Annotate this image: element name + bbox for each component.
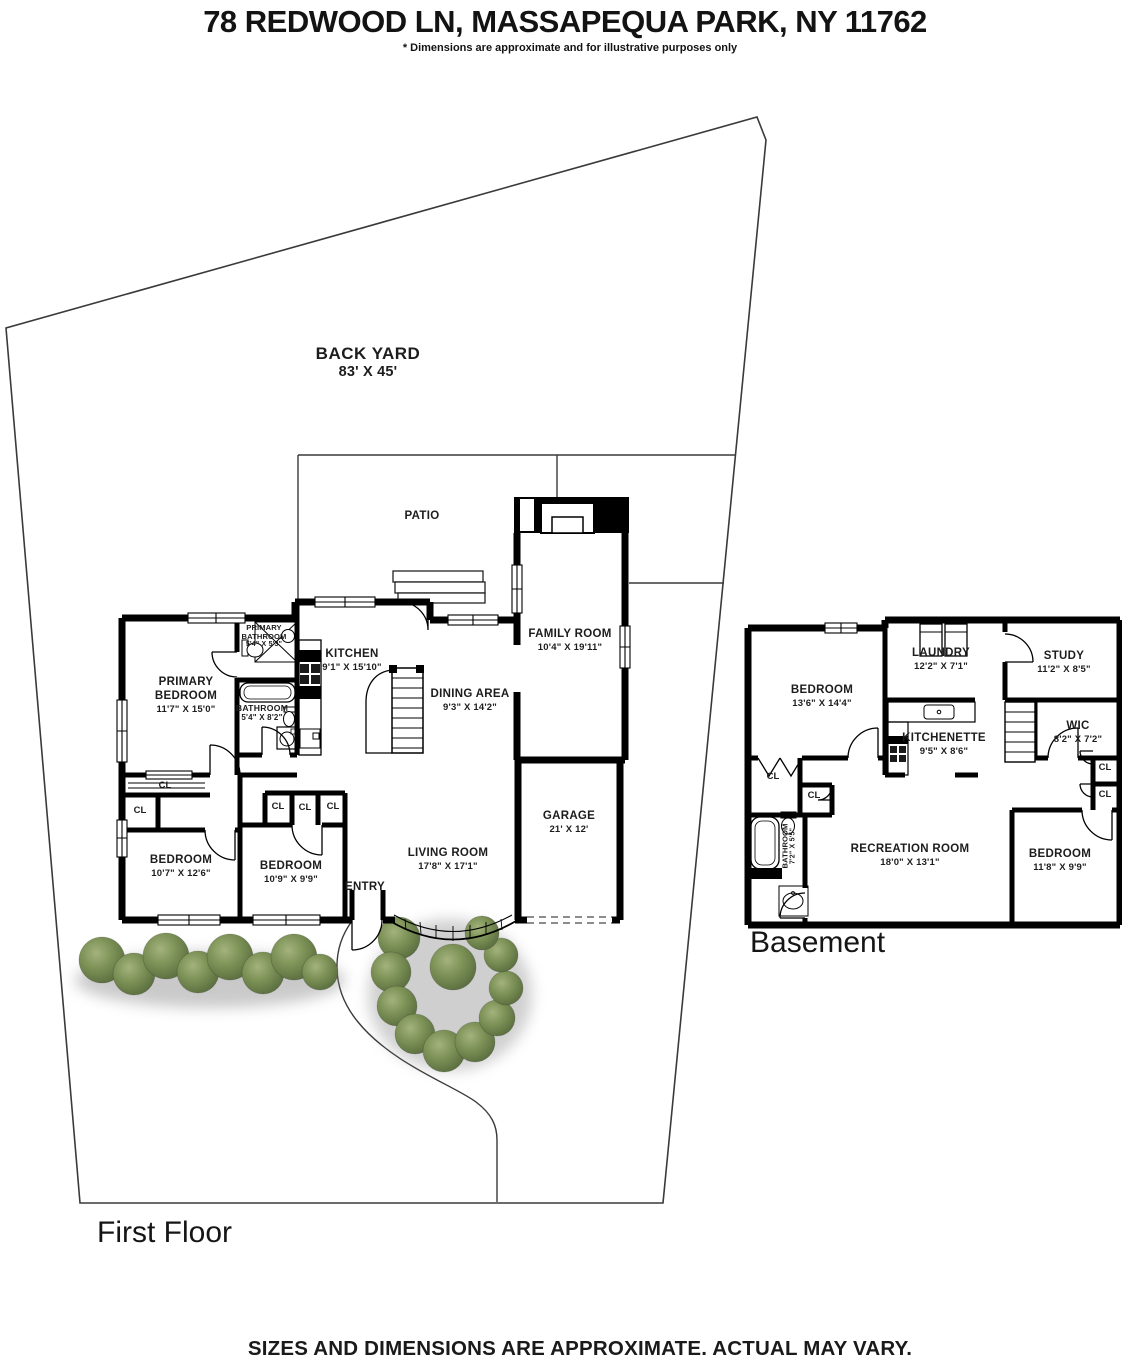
- label-back-yard: BACK YARD 83' X 45': [316, 344, 421, 382]
- label-living-room: LIVING ROOM 17'8" X 17'1": [408, 847, 489, 872]
- label-study: STUDY 11'2" X 8'5": [1037, 650, 1090, 675]
- floor-plan-page: 78 REDWOOD LN, MASSAPEQUA PARK, NY 11762…: [0, 0, 1122, 1362]
- label-wic: WIC 8'2" X 7'2": [1054, 720, 1102, 745]
- closet-label: CL: [327, 801, 340, 812]
- caption-first-floor: First Floor: [97, 1216, 232, 1250]
- patio-steps: [393, 571, 485, 603]
- closet-label: CL: [808, 790, 821, 801]
- disclaimer-note: * Dimensions are approximate and for ill…: [403, 42, 737, 54]
- page-title: 78 REDWOOD LN, MASSAPEQUA PARK, NY 11762: [203, 4, 927, 40]
- label-basement-bedroom: BEDROOM 13'6" X 14'4": [791, 684, 853, 709]
- label-bedroom-left: BEDROOM 10'7" X 12'6": [150, 854, 212, 879]
- caption-basement: Basement: [750, 926, 885, 960]
- closet-label: CL: [1099, 762, 1112, 773]
- label-bedroom-middle: BEDROOM 10'9" X 9'9": [260, 860, 322, 885]
- kitchen-appliances: [297, 640, 321, 755]
- closet-label: CL: [1099, 789, 1112, 800]
- footer-note: SIZES AND DIMENSIONS ARE APPROXIMATE. AC…: [248, 1337, 912, 1361]
- closet-label: CL: [272, 801, 285, 812]
- closet-label: CL: [159, 780, 172, 791]
- label-laundry: LAUNDRY 12'2" X 7'1": [912, 647, 970, 672]
- closet-label: CL: [299, 802, 312, 813]
- basement-windows: [825, 623, 857, 633]
- closet-label: CL: [134, 805, 147, 816]
- garage-door-dashed: [527, 915, 612, 925]
- basement-stairs: [1005, 702, 1035, 762]
- first-floor-stairs: [366, 665, 424, 753]
- basement-doors: [758, 634, 1112, 918]
- fireplace: [514, 497, 629, 533]
- label-primary-bathroom: PRIMARY BATHROOM 5'4" X 5'3": [242, 623, 287, 650]
- label-garage: GARAGE 21' X 12': [543, 810, 595, 835]
- label-family-room: FAMILY ROOM 10'4" X 19'11": [528, 628, 611, 653]
- label-kitchenette: KITCHENETTE 9'5" X 8'6": [902, 732, 986, 757]
- label-primary-bedroom: PRIMARY BEDROOM 11'7" X 15'0": [155, 676, 217, 715]
- label-kitchen: KITCHEN 9'1" X 15'10": [322, 648, 381, 673]
- label-basement-bathroom: BATHROOM 7'2" X 5'5": [780, 824, 798, 869]
- closet-label: CL: [767, 771, 780, 782]
- label-bathroom: BATHROOM 5'4" X 8'2": [236, 703, 288, 723]
- label-patio: PATIO: [405, 510, 440, 524]
- label-basement-bedroom-right: BEDROOM 11'8" X 9'9": [1029, 848, 1091, 873]
- label-entry: ENTRY: [345, 881, 385, 895]
- label-recreation-room: RECREATION ROOM 18'0" X 13'1": [851, 843, 970, 868]
- label-dining-area: DINING AREA 9'3" X 14'2": [431, 688, 510, 713]
